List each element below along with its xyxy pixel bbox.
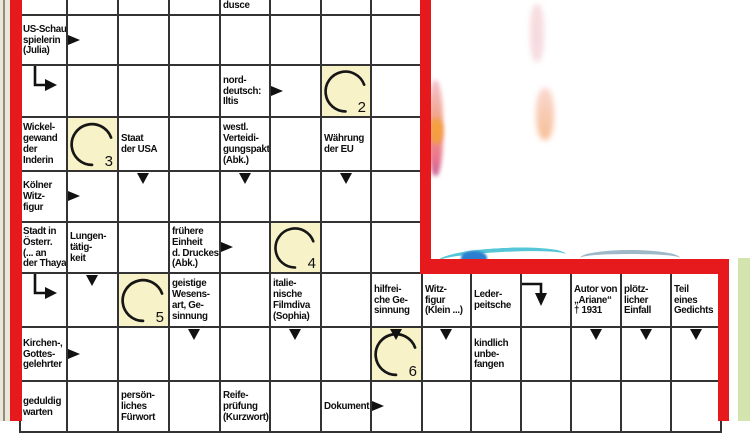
answer-cell[interactable] <box>370 14 423 66</box>
clue-cell: nord-deutsch:Iltis <box>219 64 271 118</box>
clue-cell: Leder-peitsche <box>470 272 522 328</box>
answer-cell[interactable] <box>570 380 622 433</box>
answer-cell[interactable] <box>520 272 572 328</box>
clue-text: Lungen-tätig-keit <box>70 223 114 272</box>
answer-cell[interactable] <box>620 380 672 433</box>
photo-remnant-orange-icon <box>430 118 443 144</box>
clue-text: KölnerWitz-figur <box>23 172 63 221</box>
answer-cell[interactable] <box>370 116 423 172</box>
clue-cell: Reife-prüfung(Kurzwort) <box>219 380 271 433</box>
down-arrow-icon <box>188 329 200 340</box>
answer-cell[interactable] <box>269 14 322 66</box>
right-arrow-icon <box>271 86 283 96</box>
clue-text: US-Schau-spielerin(Julia) <box>23 16 63 64</box>
answer-cell[interactable] <box>269 64 322 118</box>
circle-number: 6 <box>409 363 417 380</box>
answer-cell[interactable] <box>370 64 423 118</box>
answer-cell[interactable] <box>66 326 119 382</box>
answer-cell[interactable] <box>269 326 322 382</box>
right-arrow-icon <box>68 349 80 359</box>
answer-cell[interactable] <box>117 64 170 118</box>
answer-cell[interactable] <box>370 170 423 223</box>
right-arrow-icon <box>68 35 80 45</box>
clue-text: persön-lichesFürwort <box>121 382 165 431</box>
clue-cell: Witz-figur(Klein ...) <box>421 272 472 328</box>
clue-text: Kirchen-,Gottes-gelehrter <box>23 328 63 380</box>
elbow-right-down-arrow-icon <box>522 280 552 310</box>
answer-cell[interactable] <box>66 380 119 433</box>
elbow-down-right-arrow-icon <box>30 66 62 96</box>
clue-text: Autor von„Ariane“† 1931 <box>574 274 617 326</box>
answer-cell[interactable] <box>520 380 572 433</box>
answer-cell[interactable] <box>168 380 221 433</box>
answer-cell[interactable] <box>520 326 572 382</box>
red-border-horizontal <box>420 259 729 274</box>
clue-text: geistigeWesens-art, Ge-sinnung <box>172 274 216 326</box>
red-border-top-right <box>420 0 432 274</box>
clue-text: nord-deutsch:Iltis <box>223 66 266 116</box>
answer-cell[interactable] <box>117 170 170 223</box>
clue-cell: Kirchen-,Gottes-gelehrter <box>19 326 68 382</box>
solution-circle-cell[interactable]: 2 <box>320 64 372 118</box>
clue-text: Währungder EU <box>324 118 367 170</box>
answer-cell[interactable] <box>19 64 68 118</box>
clue-text: Leder-peitsche <box>474 274 517 326</box>
clue-text: Staatder USA <box>121 118 165 170</box>
down-arrow-icon <box>137 173 149 184</box>
clue-text: geduldigwarten <box>23 382 63 431</box>
clue-cell: TeileinesGedichts <box>670 272 722 328</box>
answer-cell[interactable] <box>19 272 68 328</box>
answer-cell[interactable] <box>320 272 372 328</box>
answer-cell[interactable] <box>117 14 170 66</box>
clue-cell: frühereEinheitd. Druckes(Abk.) <box>168 221 221 274</box>
photo-cutout-area <box>431 0 750 259</box>
down-arrow-icon <box>239 173 251 184</box>
down-arrow-icon <box>440 329 452 340</box>
answer-cell[interactable] <box>168 326 221 382</box>
answer-cell[interactable] <box>320 221 372 274</box>
down-arrow-icon <box>86 275 98 286</box>
clue-text: westl.Verteidi-gungspakt(Abk.) <box>223 118 266 170</box>
clue-cell: geistigeWesens-art, Ge-sinnung <box>168 272 221 328</box>
answer-cell[interactable] <box>66 14 119 66</box>
answer-cell[interactable] <box>66 64 119 118</box>
solution-circle-cell[interactable]: 4 <box>269 221 322 274</box>
answer-cell[interactable] <box>370 380 423 433</box>
clue-text: dusce <box>223 0 266 14</box>
answer-cell[interactable] <box>219 221 271 274</box>
down-arrow-icon <box>289 329 301 340</box>
elbow-down-right-arrow-icon <box>30 274 62 304</box>
answer-cell[interactable] <box>620 326 672 382</box>
clue-cell: geduldigwarten <box>19 380 68 433</box>
circle-number: 2 <box>358 99 366 116</box>
down-arrow-icon <box>390 329 402 340</box>
clue-text: plötz-licherEinfall <box>624 274 667 326</box>
answer-cell[interactable] <box>219 14 271 66</box>
red-border-right <box>718 259 729 421</box>
clue-text: Wickel-gewandderInderin <box>23 118 63 170</box>
clue-text: italie-nischeFilmdiva(Sophia) <box>273 274 317 326</box>
answer-cell[interactable] <box>421 326 472 382</box>
answer-cell[interactable] <box>117 326 170 382</box>
answer-cell[interactable] <box>269 116 322 172</box>
right-arrow-icon <box>372 401 384 411</box>
clue-cell: KölnerWitz-figur <box>19 170 68 223</box>
answer-cell[interactable] <box>320 326 372 382</box>
clue-text: Stadt inÖsterr.(... ander Thaya) <box>23 223 63 272</box>
answer-cell[interactable] <box>421 380 472 433</box>
clue-text: kindlichunbe-fangen <box>474 328 517 380</box>
solution-circle-cell[interactable]: 5 <box>117 272 170 328</box>
right-arrow-icon <box>68 191 80 201</box>
down-arrow-icon <box>690 329 702 340</box>
clue-cell: Wickel-gewandderInderin <box>19 116 68 172</box>
clue-cell: Autor von„Ariane“† 1931 <box>570 272 622 328</box>
clue-text: TeileinesGedichts <box>674 274 717 326</box>
answer-cell[interactable] <box>66 272 119 328</box>
circle-number: 5 <box>156 309 164 326</box>
clue-cell: kindlichunbe-fangen <box>470 326 522 382</box>
clue-text: hilfrei-che Ge-sinnung <box>374 274 418 326</box>
photo-remnant-blob-icon <box>536 88 554 140</box>
circle-number: 4 <box>308 255 316 272</box>
answer-cell[interactable] <box>168 14 221 66</box>
answer-cell[interactable] <box>117 221 170 274</box>
clue-cell: Stadt inÖsterr.(... ander Thaya) <box>19 221 68 274</box>
red-border-left <box>10 0 22 421</box>
circle-number: 3 <box>105 153 113 170</box>
photo-remnant-streak-icon <box>530 4 544 62</box>
clue-cell: westl.Verteidi-gungspakt(Abk.) <box>219 116 271 172</box>
clue-cell: Lungen-tätig-keit <box>66 221 119 274</box>
answer-cell[interactable] <box>269 380 322 433</box>
clue-cell: US-Schau-spielerin(Julia) <box>19 14 68 66</box>
clue-text: Witz-figur(Klein ...) <box>425 274 467 326</box>
answer-cell[interactable] <box>219 326 271 382</box>
clue-text: Reife-prüfung(Kurzwort) <box>223 382 266 431</box>
answer-cell[interactable] <box>370 221 423 274</box>
answer-cell[interactable] <box>219 170 271 223</box>
clue-cell: Staatder USA <box>117 116 170 172</box>
answer-cell[interactable] <box>320 170 372 223</box>
answer-cell[interactable] <box>269 170 322 223</box>
answer-cell[interactable] <box>66 170 119 223</box>
page-green-strip <box>738 258 750 421</box>
down-arrow-icon <box>340 173 352 184</box>
answer-cell[interactable] <box>670 380 722 433</box>
down-arrow-icon <box>640 329 652 340</box>
answer-cell[interactable] <box>670 326 722 382</box>
clue-cell: Dokument <box>320 380 372 433</box>
answer-cell[interactable] <box>470 380 522 433</box>
clue-cell: persön-lichesFürwort <box>117 380 170 433</box>
solution-circle-cell[interactable]: 3 <box>66 116 119 172</box>
answer-cell[interactable] <box>168 116 221 172</box>
down-arrow-icon <box>590 329 602 340</box>
answer-cell[interactable] <box>219 272 271 328</box>
clue-text: frühereEinheitd. Druckes(Abk.) <box>172 223 216 272</box>
clue-cell: italie-nischeFilmdiva(Sophia) <box>269 272 322 328</box>
answer-cell[interactable] <box>168 64 221 118</box>
answer-cell[interactable] <box>168 170 221 223</box>
clue-cell: plötz-licherEinfall <box>620 272 672 328</box>
answer-cell[interactable] <box>570 326 622 382</box>
answer-cell[interactable] <box>320 14 372 66</box>
clue-text: Dokument <box>324 382 367 431</box>
solution-circle-cell[interactable]: 6 <box>370 326 423 382</box>
clue-cell: hilfrei-che Ge-sinnung <box>370 272 423 328</box>
clue-cell: Währungder EU <box>320 116 372 172</box>
right-arrow-icon <box>221 242 233 252</box>
